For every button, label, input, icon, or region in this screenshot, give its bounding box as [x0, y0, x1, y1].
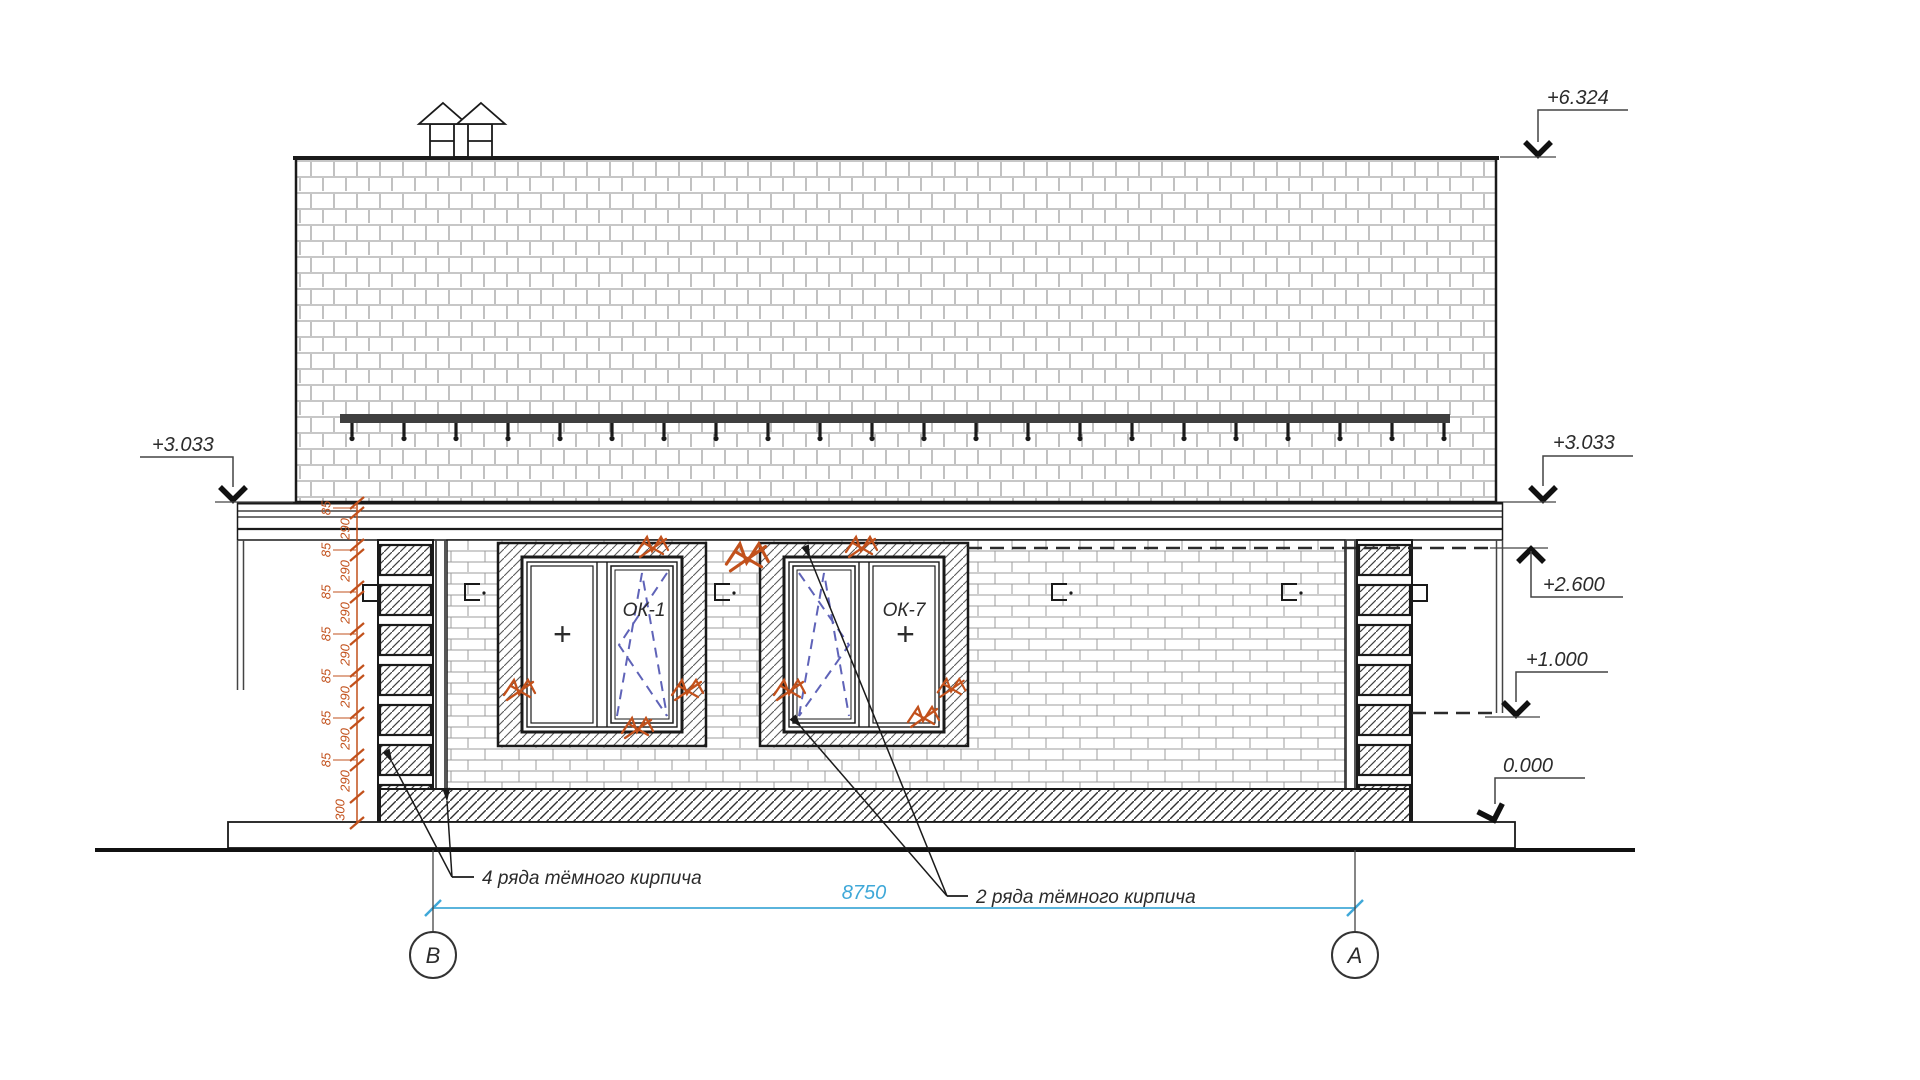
- window-ok1-label: ОК-1: [623, 600, 666, 621]
- chain-dim-value: 290: [337, 559, 352, 582]
- mark-eave-left-value: +3.033: [152, 434, 214, 456]
- chain-dim-value: 85: [318, 584, 333, 599]
- roof-gable: [293, 103, 1499, 502]
- window-ok1-frame: [522, 557, 682, 732]
- drawing-svg: + ОК-1 + ОК-7 +6.324 +3.033 +3.033 +2.60…: [0, 0, 1920, 1080]
- eave-corner-drop-left: [238, 540, 244, 690]
- chain-dim-value: 85: [318, 626, 333, 641]
- fascia: [237, 502, 1503, 540]
- mark-lintel-value: +2.600: [1543, 574, 1605, 596]
- vent-chimney-right: [457, 103, 505, 157]
- window-ok7-fixed-mark: +: [896, 616, 915, 652]
- roof-shingle-face: [296, 158, 1496, 502]
- axis-B-label: В: [426, 943, 441, 968]
- facade-elevation-drawing: + ОК-1 + ОК-7 +6.324 +3.033 +3.033 +2.60…: [0, 0, 1920, 1080]
- quoin-column-right: [1359, 545, 1410, 815]
- mark-eave-left: +3.033: [140, 434, 293, 502]
- dimension-overall-value: 8750: [842, 882, 887, 904]
- chain-dim-value: 290: [337, 685, 352, 708]
- mark-ridge: +6.324: [1500, 87, 1628, 157]
- plinth-foundation: [95, 789, 1635, 850]
- chain-dim-value: 290: [337, 769, 352, 792]
- mark-floor-value: 0.000: [1503, 755, 1553, 777]
- mark-eave-right-value: +3.033: [1553, 432, 1615, 454]
- chain-dim-value: 85: [318, 710, 333, 725]
- window-ok7-frame: [784, 557, 944, 732]
- chain-dim-value: 300: [332, 798, 347, 820]
- chain-dim-value: 85: [318, 542, 333, 557]
- eave-corner-drop-right: [1497, 540, 1503, 713]
- mark-eave-right: +3.033: [1503, 432, 1633, 502]
- chain-dim-value: 290: [337, 517, 352, 540]
- brick-course-dimension-chain: 85290852908529085290852908529085290300: [318, 497, 364, 829]
- chain-dim-value: 290: [337, 643, 352, 666]
- axis-B: В: [410, 850, 456, 978]
- window-ok7-label: ОК-7: [883, 600, 927, 621]
- mark-mid: +1.000: [1485, 649, 1608, 717]
- axis-A-label: А: [1346, 943, 1363, 968]
- mark-lintel: +2.600: [1490, 548, 1623, 597]
- annotation-dark-brick-4: 4 ряда тёмного кирпича: [482, 868, 702, 889]
- window-ok1-fixed-mark: +: [553, 616, 572, 652]
- mark-mid-value: +1.000: [1526, 649, 1588, 671]
- annotation-dark-brick-2: 2 ряда тёмного кирпича: [975, 887, 1196, 908]
- window-ok1: + ОК-1: [498, 543, 706, 746]
- quoin-column-left: [380, 545, 431, 815]
- chain-dim-value: 290: [337, 727, 352, 750]
- mark-floor: 0.000: [1478, 755, 1585, 824]
- chain-dim-value: 85: [318, 752, 333, 767]
- snow-guard-bar: [340, 414, 1450, 423]
- chain-dim-value: 85: [318, 668, 333, 683]
- mark-ridge-value: +6.324: [1547, 87, 1609, 109]
- vent-chimney-left: [419, 103, 467, 157]
- dark-brick-plinth: [380, 789, 1410, 822]
- foundation-ledge: [228, 822, 1515, 848]
- chain-dim-value: 85: [318, 500, 333, 515]
- chain-dim-value: 290: [337, 601, 352, 624]
- axis-A: А: [1332, 850, 1378, 978]
